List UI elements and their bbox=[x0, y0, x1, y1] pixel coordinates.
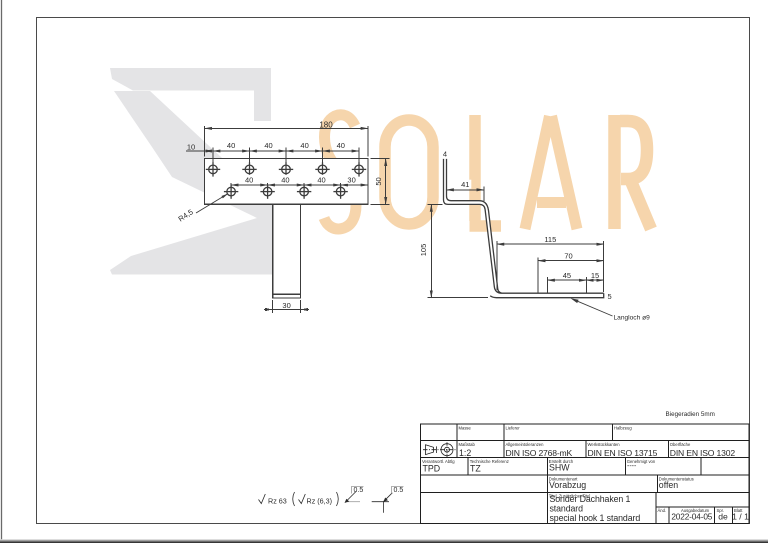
svg-text:40: 40 bbox=[337, 141, 345, 150]
svg-text:Oberfläche: Oberfläche bbox=[670, 442, 691, 447]
svg-text:TZ: TZ bbox=[470, 464, 481, 474]
svg-text:DIN ISO 2768-mK: DIN ISO 2768-mK bbox=[506, 448, 573, 458]
svg-text:30: 30 bbox=[347, 175, 355, 184]
svg-text:41: 41 bbox=[461, 180, 469, 189]
svg-text:15: 15 bbox=[591, 271, 599, 280]
svg-text:TPD: TPD bbox=[423, 464, 441, 474]
svg-text:10: 10 bbox=[187, 143, 195, 152]
svg-text:40: 40 bbox=[317, 175, 325, 184]
svg-text:Masse: Masse bbox=[459, 426, 472, 431]
svg-text:1 / 1: 1 / 1 bbox=[732, 512, 749, 522]
svg-text:offen: offen bbox=[659, 480, 679, 490]
svg-text:0.5: 0.5 bbox=[394, 487, 404, 494]
svg-text:Biegeradien 5mm: Biegeradien 5mm bbox=[666, 411, 715, 418]
svg-text:40: 40 bbox=[245, 175, 253, 184]
svg-text:4: 4 bbox=[443, 149, 447, 158]
svg-text:40: 40 bbox=[281, 175, 289, 184]
svg-text:Langloch ø9: Langloch ø9 bbox=[614, 315, 651, 322]
svg-text:Maßstab: Maßstab bbox=[459, 442, 476, 447]
svg-text:Rz 63: Rz 63 bbox=[268, 497, 287, 506]
svg-text:40: 40 bbox=[264, 141, 272, 150]
svg-text:----: ---- bbox=[627, 463, 637, 470]
svg-text:1:2: 1:2 bbox=[459, 448, 471, 458]
svg-text:70: 70 bbox=[564, 251, 572, 260]
svg-text:50: 50 bbox=[374, 177, 383, 185]
svg-text:5: 5 bbox=[608, 292, 612, 301]
svg-text:Rz (6,3): Rz (6,3) bbox=[307, 497, 333, 506]
svg-text:180: 180 bbox=[319, 120, 333, 129]
svg-text:45: 45 bbox=[563, 271, 571, 280]
svg-text:Werkstückkanten: Werkstückkanten bbox=[588, 442, 621, 447]
svg-text:Vorabzug: Vorabzug bbox=[549, 480, 586, 490]
svg-text:2022-04-05: 2022-04-05 bbox=[671, 512, 712, 522]
svg-text:Halbzeug: Halbzeug bbox=[614, 426, 632, 431]
svg-text:Allgemeintoleranzen: Allgemeintoleranzen bbox=[506, 442, 545, 447]
svg-text:40: 40 bbox=[227, 141, 235, 150]
svg-text:115: 115 bbox=[544, 235, 556, 244]
svg-text:Änd.: Änd. bbox=[658, 508, 667, 513]
svg-text:105: 105 bbox=[419, 244, 428, 257]
svg-text:0.5: 0.5 bbox=[354, 487, 364, 494]
svg-text:30: 30 bbox=[282, 301, 290, 310]
svg-text:Lieferer: Lieferer bbox=[506, 426, 521, 431]
svg-text:DIN EN ISO 1302: DIN EN ISO 1302 bbox=[670, 448, 736, 458]
svg-text:DIN EN ISO 13715: DIN EN ISO 13715 bbox=[588, 448, 658, 458]
svg-text:de: de bbox=[718, 512, 728, 522]
svg-text:40: 40 bbox=[300, 141, 308, 150]
svg-text:SHW: SHW bbox=[549, 463, 570, 473]
svg-text:special hook 1 standard: special hook 1 standard bbox=[550, 513, 641, 523]
